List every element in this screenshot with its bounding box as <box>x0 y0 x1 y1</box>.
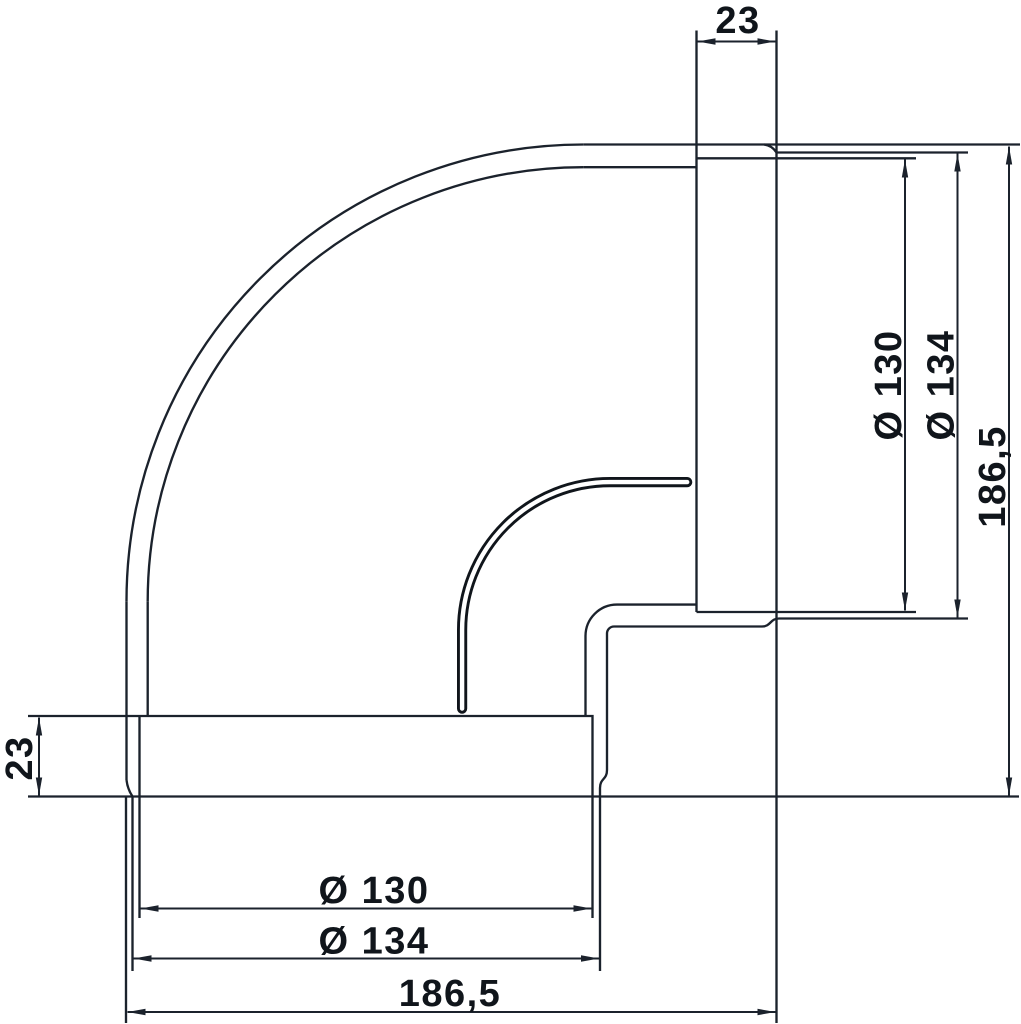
svg-text:186,5: 186,5 <box>399 973 502 1015</box>
svg-text:Ø 134: Ø 134 <box>921 329 963 440</box>
svg-text:Ø 130: Ø 130 <box>868 329 910 440</box>
svg-text:Ø 134: Ø 134 <box>318 921 429 963</box>
svg-text:Ø 130: Ø 130 <box>318 870 429 912</box>
svg-text:23: 23 <box>0 735 41 780</box>
svg-text:186,5: 186,5 <box>972 425 1014 528</box>
svg-text:23: 23 <box>715 0 760 42</box>
